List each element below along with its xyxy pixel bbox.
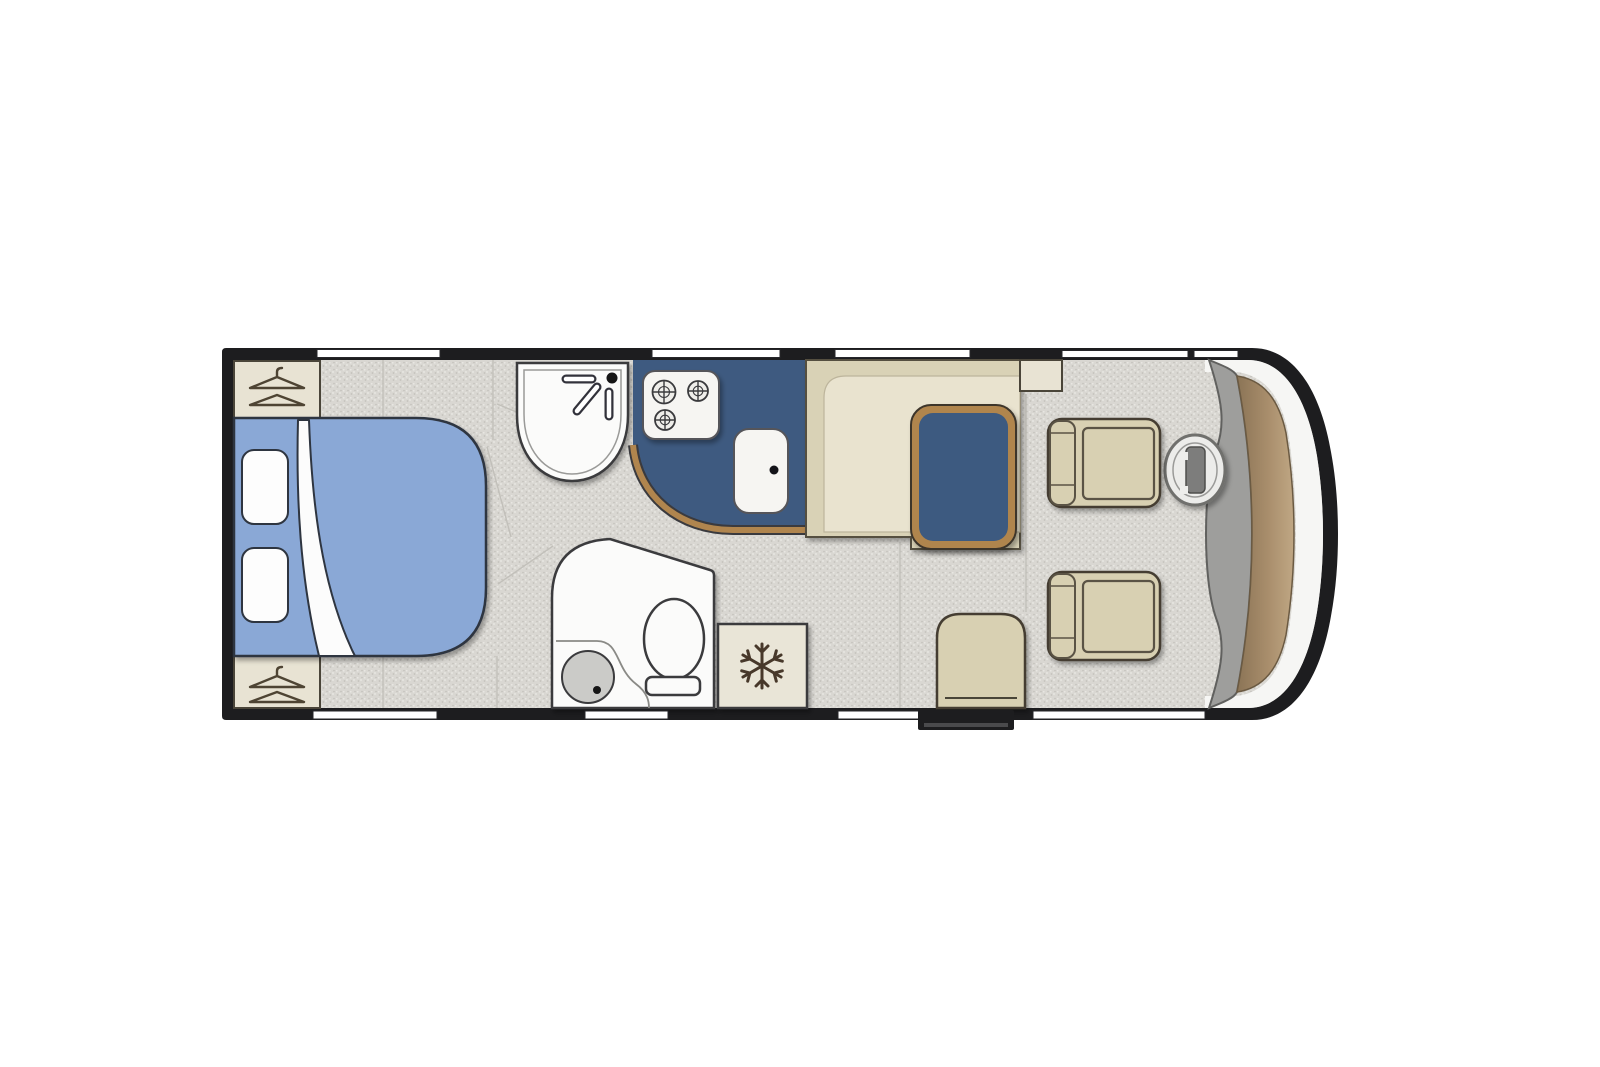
double-bed [234, 418, 486, 656]
shower-tray [562, 651, 614, 703]
side-seat [937, 614, 1025, 708]
washroom [552, 539, 714, 708]
washbasin-unit [517, 363, 628, 481]
pillow [242, 548, 288, 622]
dinette-table [911, 405, 1016, 549]
burner [688, 381, 708, 401]
overhead-locker [1020, 360, 1062, 391]
driver-seat [1048, 419, 1160, 507]
toilet-base [646, 677, 700, 695]
kitchen-sink [734, 429, 788, 513]
pillow [242, 450, 288, 524]
toilet-bowl [644, 599, 704, 679]
refrigerator [718, 624, 807, 708]
floorplan-svg [0, 0, 1600, 1067]
motorhome-floorplan [0, 0, 1600, 1067]
kitchen [633, 360, 806, 530]
steering-wheel [1165, 435, 1225, 505]
entry-step [918, 710, 1014, 730]
hob [643, 371, 719, 439]
cab-door-glass [1194, 351, 1238, 358]
passenger-seat [1048, 572, 1160, 660]
sink-drain [770, 466, 779, 475]
wardrobe-rear-bottom [234, 655, 320, 708]
burner [655, 410, 675, 430]
wardrobe-rear-top [234, 361, 320, 418]
cab-door-glass [1062, 351, 1188, 358]
shower-drain [593, 686, 601, 694]
burner [653, 381, 676, 404]
